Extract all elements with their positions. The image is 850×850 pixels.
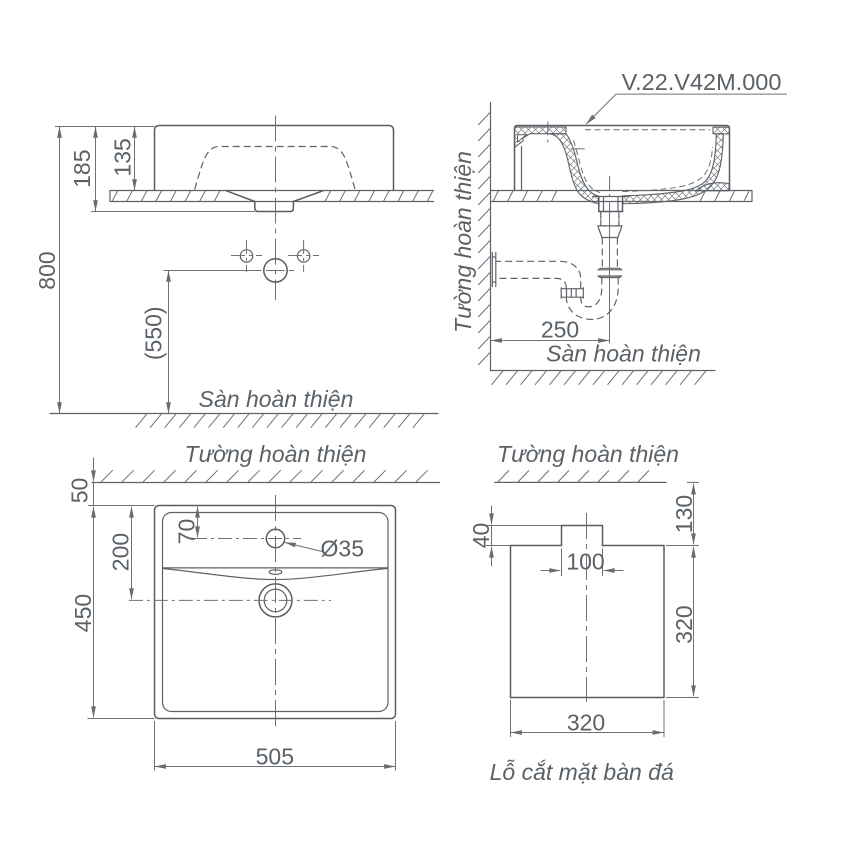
svg-text:200: 200 xyxy=(108,533,134,571)
svg-text:185: 185 xyxy=(69,150,95,188)
svg-text:100: 100 xyxy=(566,549,604,575)
svg-text:135: 135 xyxy=(110,138,136,176)
svg-text:Tường hoàn thiện: Tường hoàn thiện xyxy=(185,441,367,467)
svg-text:130: 130 xyxy=(671,495,697,533)
svg-text:Lỗ cắt mặt bàn đá: Lỗ cắt mặt bàn đá xyxy=(490,758,674,785)
svg-text:Ø35: Ø35 xyxy=(321,536,364,562)
svg-text:70: 70 xyxy=(174,519,200,545)
svg-text:505: 505 xyxy=(256,744,294,770)
svg-text:Sàn hoàn thiện: Sàn hoàn thiện xyxy=(199,386,354,412)
svg-text:320: 320 xyxy=(671,605,697,643)
svg-text:250: 250 xyxy=(541,317,579,343)
svg-text:40: 40 xyxy=(468,523,494,549)
svg-text:Tường hoàn thiện: Tường hoàn thiện xyxy=(497,441,679,467)
svg-text:50: 50 xyxy=(67,478,93,504)
svg-text:Sàn hoàn thiện: Sàn hoàn thiện xyxy=(546,341,701,367)
svg-text:450: 450 xyxy=(70,594,96,632)
svg-text:Tường hoàn thiện: Tường hoàn thiện xyxy=(450,151,476,333)
svg-text:(550): (550) xyxy=(141,306,167,360)
svg-text:V.22.V42M.000: V.22.V42M.000 xyxy=(622,69,782,95)
svg-text:320: 320 xyxy=(567,710,605,736)
svg-text:800: 800 xyxy=(34,251,60,289)
